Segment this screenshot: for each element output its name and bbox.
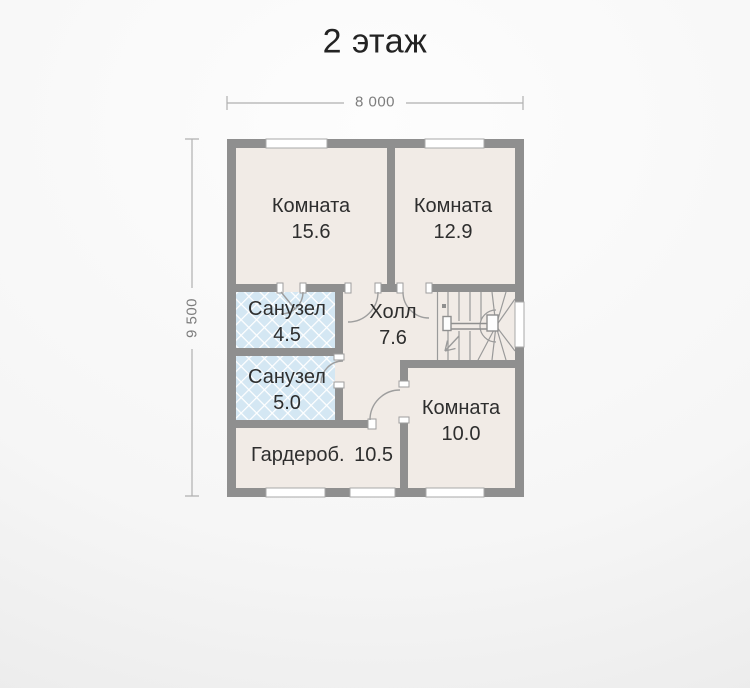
room-area: 7.6: [369, 325, 416, 351]
room-area: 10.0: [422, 421, 500, 447]
room-name: Комната: [422, 395, 500, 421]
window: [425, 139, 484, 148]
window: [266, 488, 325, 497]
room-area: 15.6: [272, 219, 350, 245]
dimension-height-label: 9 500: [184, 298, 201, 338]
stair-newel-dot: [442, 304, 446, 308]
bath2-right-wall: [335, 388, 343, 420]
room-label-bath2: Санузел 5.0: [248, 364, 326, 416]
room-name: Санузел: [248, 364, 326, 390]
floor-plan-page: 2 этаж 8 000 9 500 Комната 15.6 Комната …: [0, 0, 750, 688]
room-label-hall: Холл 7.6: [369, 299, 416, 351]
wall-horizontal: [381, 284, 397, 292]
room-area: 5.0: [248, 390, 326, 416]
wall-horizontal: [306, 284, 345, 292]
room-name: Гардероб.: [249, 444, 347, 466]
bedroom3-left-wall: [400, 423, 408, 488]
room-name: Санузел: [248, 296, 326, 322]
room-label-bedroom2: Комната 12.9: [414, 193, 492, 245]
room-name: Холл: [369, 299, 416, 325]
page-title: 2 этаж: [323, 23, 428, 62]
room-name: Комната: [414, 193, 492, 219]
room-label-bath1: Санузел 4.5: [248, 296, 326, 348]
room-area: 10.5: [352, 444, 395, 466]
room-area: 12.9: [414, 219, 492, 245]
wall-horizontal: [236, 284, 277, 292]
room-label-bedroom3: Комната 10.0: [422, 395, 500, 447]
stairs-bottom-wall: [400, 360, 515, 368]
room-name: Комната: [272, 193, 350, 219]
wall-horizontal: [432, 284, 515, 292]
stair-rail-post: [443, 317, 451, 331]
wall-between-baths: [236, 348, 343, 356]
wardrobe-top-wall: [236, 420, 368, 428]
outer-wall-left: [227, 139, 236, 497]
window: [515, 302, 524, 347]
room-area: 4.5: [248, 322, 326, 348]
room-label-bedroom1: Комната 15.6: [272, 193, 350, 245]
window: [350, 488, 395, 497]
dimension-width-label: 8 000: [355, 94, 395, 111]
wall-between-bedrooms: [387, 148, 395, 284]
bath1-right-wall: [335, 292, 343, 348]
window: [426, 488, 484, 497]
room-label-wardrobe: Гардероб. 10.5: [249, 442, 395, 468]
stair-rail-post: [487, 315, 498, 331]
window: [266, 139, 327, 148]
bedroom3-left-wall: [400, 360, 408, 381]
